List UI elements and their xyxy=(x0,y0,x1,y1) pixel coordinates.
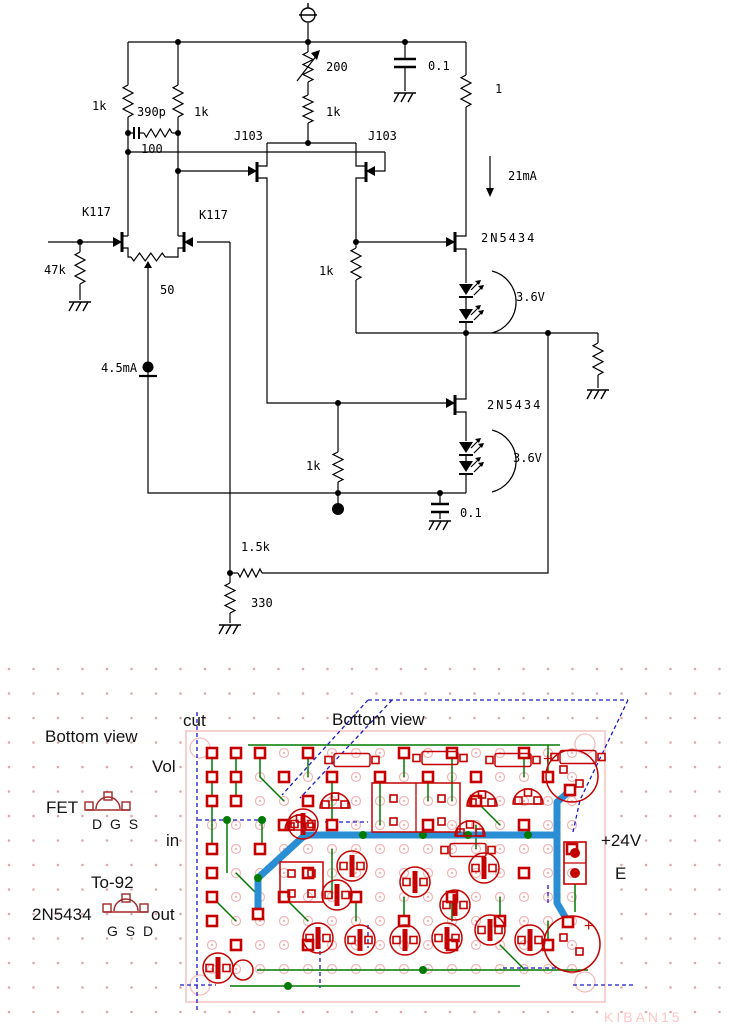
grid-dot xyxy=(155,1011,158,1014)
label-j103-right: J103 xyxy=(368,129,397,143)
label-plus-top: + xyxy=(543,751,552,768)
hole xyxy=(427,848,429,850)
grid-dot xyxy=(694,864,697,867)
grid-dot xyxy=(57,986,60,989)
grid-dot xyxy=(645,717,648,720)
grid-dot xyxy=(155,790,158,793)
grid-dot xyxy=(81,864,84,867)
hole xyxy=(211,944,213,946)
hole xyxy=(451,872,453,874)
grid-dot xyxy=(375,668,378,671)
grid-dot xyxy=(179,668,182,671)
grid-dot xyxy=(645,962,648,965)
label-2n5434-part: 2N5434 xyxy=(32,905,92,924)
grid-dot xyxy=(179,1011,182,1014)
grid-dot xyxy=(8,864,11,867)
grid-dot xyxy=(253,692,256,695)
grid-dot xyxy=(498,717,501,720)
grid-dot xyxy=(277,668,280,671)
grid-dot xyxy=(253,668,256,671)
watermark-kiban: KIBAN15 xyxy=(604,1009,683,1025)
grid-dot xyxy=(32,864,35,867)
hole xyxy=(283,752,285,754)
grid-dot xyxy=(32,741,35,744)
label-current-21ma: 21mA xyxy=(508,169,538,183)
grid-dot xyxy=(106,692,109,695)
arrow-icon xyxy=(311,50,320,60)
grid-dot xyxy=(351,668,354,671)
grid-dot xyxy=(57,962,60,965)
pad xyxy=(255,748,265,758)
grid-dot xyxy=(130,668,133,671)
hole xyxy=(403,848,405,850)
hole xyxy=(475,944,477,946)
grid-dot xyxy=(522,717,525,720)
led-arrow-icon xyxy=(478,443,484,448)
grid-dot xyxy=(351,1011,354,1014)
grid-dot xyxy=(571,1011,574,1014)
hole xyxy=(475,896,477,898)
grid-dot xyxy=(645,668,648,671)
grid-dot xyxy=(179,766,182,769)
label-24v: +24V xyxy=(601,831,642,850)
hole xyxy=(283,944,285,946)
grid-dot xyxy=(645,864,648,867)
pad xyxy=(375,772,385,782)
trace-junction xyxy=(254,874,262,882)
grid-dot xyxy=(179,741,182,744)
grid-dot xyxy=(620,790,623,793)
grid-dot xyxy=(669,766,672,769)
junction-dot xyxy=(125,149,131,155)
hole xyxy=(403,824,405,826)
grid-dot xyxy=(694,839,697,842)
grid-dot xyxy=(522,692,525,695)
label-resistor-330: 330 xyxy=(251,596,273,610)
resistor xyxy=(593,343,603,375)
pad xyxy=(471,772,481,782)
schematic xyxy=(48,3,609,634)
grid-dot xyxy=(130,790,133,793)
hole xyxy=(379,848,381,850)
junction-dot xyxy=(125,130,131,136)
grid-dot xyxy=(106,962,109,965)
grid-dot xyxy=(155,986,158,989)
circuit-and-pcb-canvas: 1k 390p 1k 100 200 1k J103 J103 0.1 1 21… xyxy=(0,0,737,1036)
grid-dot xyxy=(571,668,574,671)
grid-dot xyxy=(8,766,11,769)
grid-dot xyxy=(8,717,11,720)
ground-icon xyxy=(587,390,592,399)
hole xyxy=(427,944,429,946)
grid-dot xyxy=(8,839,11,842)
grid-dot xyxy=(57,864,60,867)
label-j103-left: J103 xyxy=(234,129,263,143)
grid-dot xyxy=(8,815,11,818)
hole xyxy=(571,776,573,778)
grid-dot xyxy=(498,1011,501,1014)
label-cap-01-top: 0.1 xyxy=(428,59,450,73)
grid-dot xyxy=(204,668,207,671)
current-source-icon xyxy=(143,362,154,373)
transistor-flat xyxy=(358,929,363,951)
pad xyxy=(207,916,217,926)
pad xyxy=(447,748,457,758)
transistor-flat xyxy=(488,919,493,941)
hole xyxy=(523,800,525,802)
label-to92: To-92 xyxy=(91,873,134,892)
led-arrow-icon xyxy=(475,438,481,443)
hole xyxy=(547,872,549,874)
grid-dot xyxy=(473,692,476,695)
label-resistor-47k: 47k xyxy=(44,263,66,277)
wire xyxy=(455,249,466,283)
junction-dot xyxy=(335,490,341,496)
grid-dot xyxy=(645,692,648,695)
pad xyxy=(207,772,217,782)
grid-dot xyxy=(57,937,60,940)
grid-dot xyxy=(32,766,35,769)
transistor-flat xyxy=(528,929,533,951)
brace-arc xyxy=(492,271,516,333)
hole xyxy=(451,824,453,826)
grid-dot xyxy=(8,986,11,989)
hole xyxy=(499,848,501,850)
grid-dot xyxy=(179,937,182,940)
pad xyxy=(519,868,529,878)
grid-dot xyxy=(57,766,60,769)
label-cut: cut xyxy=(183,711,206,730)
trace-junction xyxy=(223,816,231,824)
grid-dot xyxy=(32,986,35,989)
grid-dot xyxy=(81,815,84,818)
label-trimmer-200: 200 xyxy=(326,60,348,74)
grid-dot xyxy=(326,668,329,671)
hole xyxy=(475,752,477,754)
grid-dot xyxy=(32,888,35,891)
grid-dot xyxy=(449,692,452,695)
grid-dot xyxy=(718,815,721,818)
grid-dot xyxy=(620,913,623,916)
grid-dot xyxy=(645,790,648,793)
hole xyxy=(571,752,573,754)
grid-dot xyxy=(130,986,133,989)
grid-dot xyxy=(718,937,721,940)
pad xyxy=(327,820,337,830)
grid-dot xyxy=(669,962,672,965)
pinout-glyph-icon xyxy=(114,899,138,911)
schematic-labels: 1k 390p 1k 100 200 1k J103 J103 0.1 1 21… xyxy=(44,59,545,610)
pad xyxy=(279,772,289,782)
label-part-pins: G S D xyxy=(107,923,155,939)
grid-dot xyxy=(669,668,672,671)
label-resistor-1k-source: 1k xyxy=(326,105,341,119)
pad xyxy=(303,796,313,806)
grid-dot xyxy=(179,839,182,842)
grid-dot xyxy=(694,888,697,891)
junction-dot xyxy=(463,330,469,336)
junction-dot xyxy=(175,130,181,136)
grid-dot xyxy=(253,717,256,720)
grid-dot xyxy=(130,1011,133,1014)
label-k117-right: K117 xyxy=(199,208,228,222)
hole xyxy=(547,896,549,898)
grid-dot xyxy=(130,839,133,842)
grid-dot xyxy=(620,937,623,940)
grid-dot xyxy=(694,790,697,793)
grid-dot xyxy=(8,913,11,916)
arrow-icon xyxy=(486,188,494,197)
grid-dot xyxy=(32,668,35,671)
trace-junction xyxy=(258,816,266,824)
label-cap-01-bottom: 0.1 xyxy=(460,506,482,520)
grid-dot xyxy=(694,937,697,940)
grid-dot xyxy=(596,1011,599,1014)
grid-dot xyxy=(81,692,84,695)
grid-dot xyxy=(645,815,648,818)
grid-dot xyxy=(571,692,574,695)
transistor-flat xyxy=(350,855,355,877)
grid-dot xyxy=(179,962,182,965)
grid-dot xyxy=(596,668,599,671)
hole xyxy=(259,944,261,946)
grid-dot xyxy=(669,937,672,940)
hole xyxy=(331,920,333,922)
transistor-flat xyxy=(413,871,418,893)
grid-dot xyxy=(179,864,182,867)
grid-dot xyxy=(522,1011,525,1014)
grid-dot xyxy=(106,839,109,842)
ground-icon xyxy=(601,390,606,399)
hole xyxy=(307,848,309,850)
grid-dot xyxy=(8,937,11,940)
hole xyxy=(355,800,357,802)
label-e: E xyxy=(615,864,626,883)
pad xyxy=(543,772,553,782)
grid-dot xyxy=(718,962,721,965)
hole xyxy=(379,872,381,874)
grid-dot xyxy=(179,913,182,916)
hole xyxy=(427,896,429,898)
ground-icon xyxy=(429,521,434,530)
grid-dot xyxy=(645,888,648,891)
grid-dot xyxy=(645,937,648,940)
resistor xyxy=(131,253,165,261)
label-bottom-view-left: Bottom view xyxy=(45,727,138,746)
grid-dot xyxy=(375,1011,378,1014)
junction-dot xyxy=(305,140,311,146)
grid-dot xyxy=(8,888,11,891)
pad xyxy=(231,796,241,806)
grid-dot xyxy=(8,668,11,671)
transistor-flat xyxy=(216,957,221,979)
hole xyxy=(259,824,261,826)
trace-junction xyxy=(464,831,472,839)
pad xyxy=(399,748,409,758)
hole xyxy=(235,848,237,850)
hole xyxy=(571,824,573,826)
junction-dot xyxy=(305,39,311,45)
grid-dot xyxy=(81,962,84,965)
grid-dot xyxy=(179,790,182,793)
grid-dot xyxy=(57,668,60,671)
grid-dot xyxy=(57,888,60,891)
grid-dot xyxy=(620,815,623,818)
hole xyxy=(403,800,405,802)
pinout-glyph-icon xyxy=(122,894,130,902)
resistor xyxy=(123,85,133,117)
resistor xyxy=(461,75,471,107)
resistor xyxy=(351,248,361,280)
label-vol: Vol xyxy=(152,757,176,776)
grid-dot xyxy=(669,913,672,916)
hole xyxy=(547,824,549,826)
pad xyxy=(231,772,241,782)
arrow-icon xyxy=(144,261,152,268)
wire xyxy=(356,178,446,242)
grid-dot xyxy=(81,668,84,671)
hole xyxy=(379,920,381,922)
grid-dot xyxy=(155,717,158,720)
grid-dot xyxy=(669,839,672,842)
grid-dot xyxy=(620,888,623,891)
junction-dot xyxy=(175,39,181,45)
hole xyxy=(355,872,357,874)
hole xyxy=(427,920,429,922)
grid-dot xyxy=(718,741,721,744)
pad xyxy=(231,748,241,758)
resistor xyxy=(303,52,313,82)
grid-dot xyxy=(106,913,109,916)
grid-dot xyxy=(547,668,550,671)
pinout-glyph-icon xyxy=(104,792,112,800)
pad xyxy=(423,772,433,782)
grid-dot xyxy=(718,790,721,793)
grid-dot xyxy=(694,913,697,916)
screenshot-root: 1k 390p 1k 100 200 1k J103 J103 0.1 1 21… xyxy=(0,0,737,1036)
ground-icon xyxy=(219,625,224,634)
grid-dot xyxy=(645,741,648,744)
label-resistor-1k-left: 1k xyxy=(92,99,107,113)
resistor xyxy=(238,569,262,577)
hole xyxy=(547,848,549,850)
grid-dot xyxy=(694,766,697,769)
grid-dot xyxy=(669,717,672,720)
hole xyxy=(523,896,525,898)
wire xyxy=(455,107,466,236)
grid-dot xyxy=(277,692,280,695)
grid-dot xyxy=(547,1011,550,1014)
grid-dot xyxy=(81,888,84,891)
label-fet: FET xyxy=(46,798,78,817)
grid-dot xyxy=(620,986,623,989)
grid-dot xyxy=(81,766,84,769)
grid-dot xyxy=(620,668,623,671)
connector-pin xyxy=(570,868,580,878)
pad xyxy=(231,940,241,950)
grid-dot xyxy=(718,864,721,867)
grid-dot xyxy=(204,1011,207,1014)
grid-dot xyxy=(718,839,721,842)
hole xyxy=(451,848,453,850)
transistor-flat xyxy=(482,857,487,879)
grid-dot xyxy=(718,766,721,769)
junction-dot xyxy=(175,168,181,174)
grid-dot xyxy=(694,692,697,695)
grid-dot xyxy=(179,692,182,695)
led-arrow-icon xyxy=(475,280,481,285)
grid-dot xyxy=(106,1011,109,1014)
grid-dot xyxy=(228,692,231,695)
pinout-glyph-icon xyxy=(85,802,93,810)
grid-dot xyxy=(620,766,623,769)
label-voltage-top: 3.6V xyxy=(516,290,545,304)
resistor xyxy=(303,95,313,123)
grid-dot xyxy=(694,815,697,818)
grid-dot xyxy=(155,839,158,842)
grid-dot xyxy=(228,1011,231,1014)
junction-dot xyxy=(227,570,233,576)
pinout-glyph-icon xyxy=(122,802,130,810)
grid-dot xyxy=(32,692,35,695)
label-fet-pins: D G S xyxy=(92,816,140,832)
label-voltage-bottom: 3.6V xyxy=(513,451,542,465)
grid-dot xyxy=(326,692,329,695)
grid-dot xyxy=(718,717,721,720)
grid-dot xyxy=(571,717,574,720)
transistor-flat xyxy=(316,927,321,949)
pad xyxy=(423,820,433,830)
grid-dot xyxy=(32,1011,35,1014)
pad xyxy=(207,868,217,878)
grid-dot xyxy=(106,668,109,671)
resistor xyxy=(225,583,235,613)
ground-icon xyxy=(394,93,399,102)
led-arrow-icon xyxy=(478,285,484,290)
label-2n5434-top: 2N5434 xyxy=(481,231,536,245)
grid-dot xyxy=(57,839,60,842)
grid-dot xyxy=(718,888,721,891)
hole xyxy=(235,824,237,826)
label-plus-bottom: + xyxy=(584,918,593,935)
grid-dot xyxy=(32,937,35,940)
label-pot-50: 50 xyxy=(160,283,174,297)
hole xyxy=(283,872,285,874)
grid-dot xyxy=(155,864,158,867)
grid-dot xyxy=(57,1011,60,1014)
label-cap-390p: 390p xyxy=(137,105,166,119)
grid-dot xyxy=(547,717,550,720)
grid-dot xyxy=(8,741,11,744)
grid-dot xyxy=(351,692,354,695)
grid-dot xyxy=(302,717,305,720)
grid-dot xyxy=(302,668,305,671)
ground-icon xyxy=(233,625,238,634)
grid-dot xyxy=(620,741,623,744)
grid-dot xyxy=(620,692,623,695)
wire xyxy=(257,178,446,403)
grid-dot xyxy=(669,741,672,744)
grid-dot xyxy=(449,1011,452,1014)
hole xyxy=(571,896,573,898)
grid-dot xyxy=(32,717,35,720)
grid-dot xyxy=(645,913,648,916)
grid-dot xyxy=(155,741,158,744)
grid-dot xyxy=(57,790,60,793)
hole xyxy=(523,848,525,850)
grid-dot xyxy=(32,839,35,842)
grid-dot xyxy=(596,692,599,695)
